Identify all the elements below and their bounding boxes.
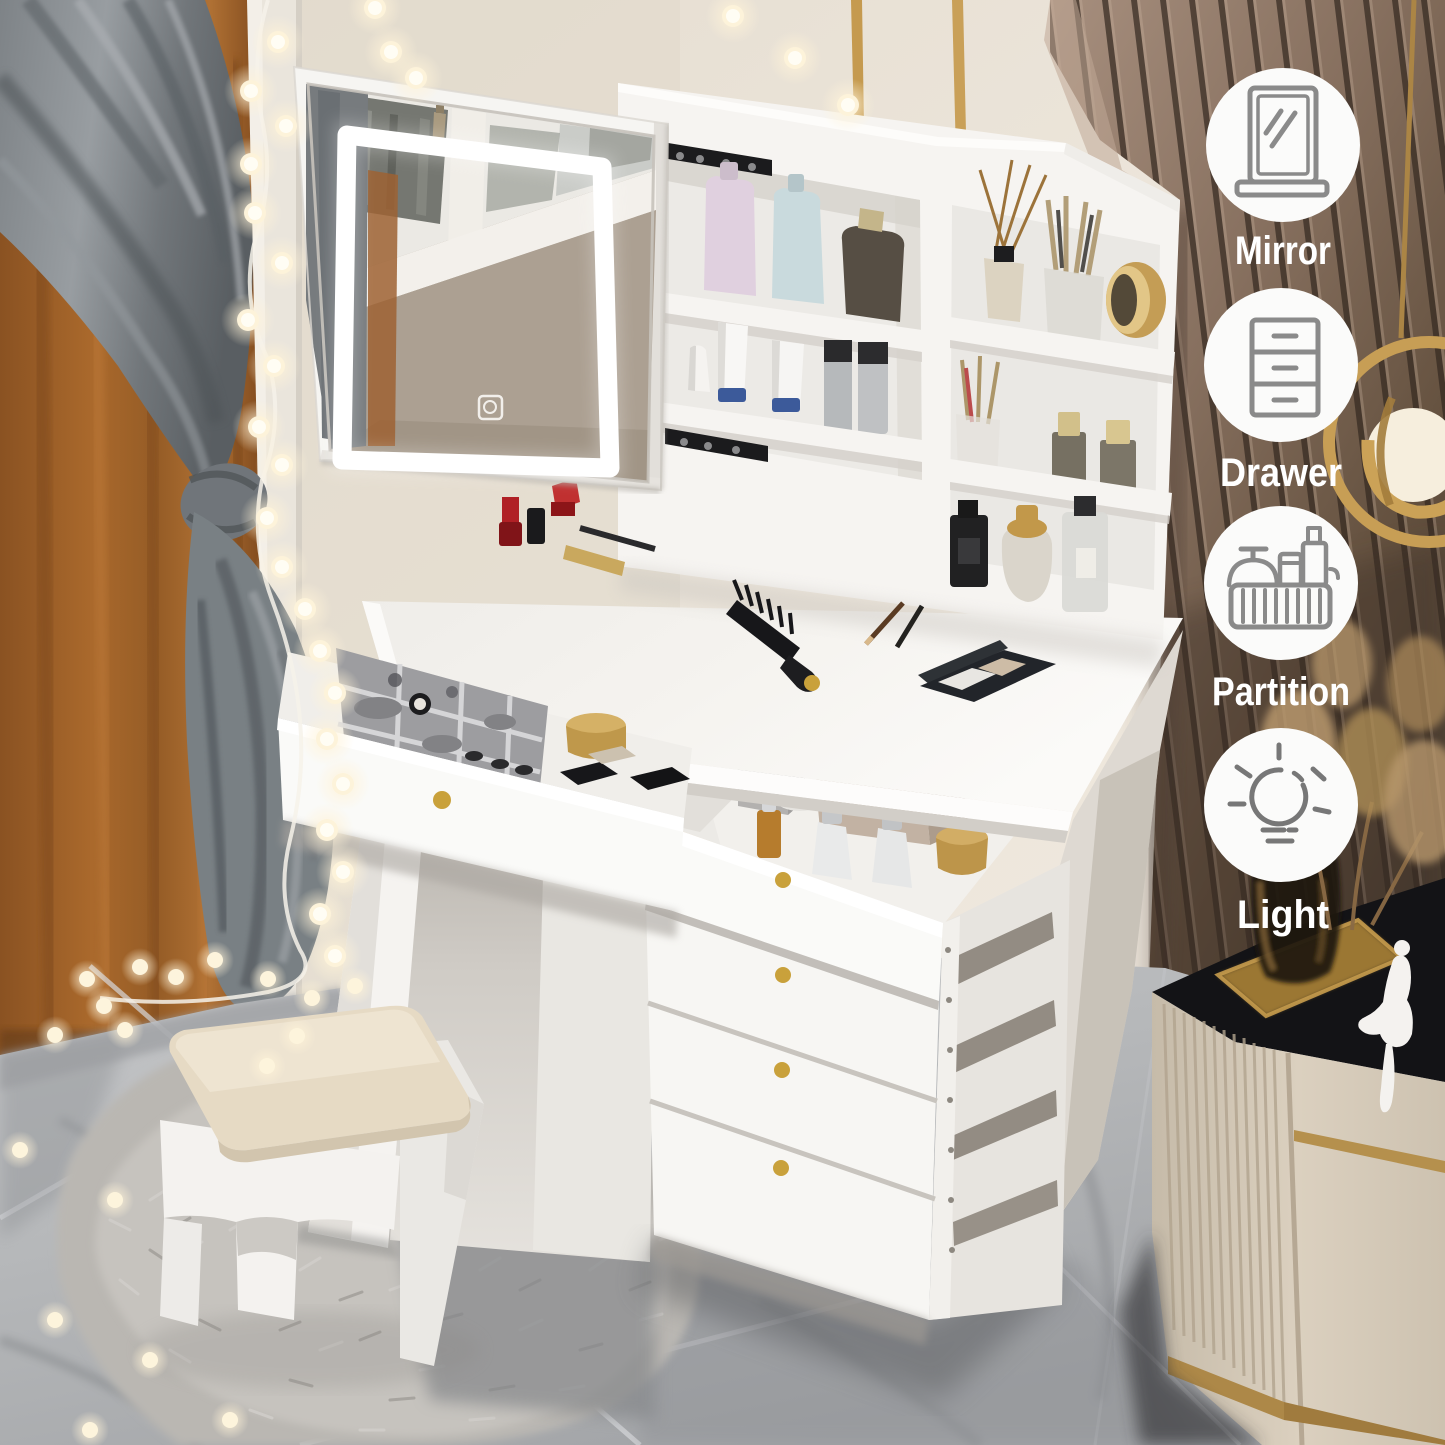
svg-text:Light: Light (1237, 893, 1329, 937)
svg-text:Drawer: Drawer (1220, 451, 1342, 495)
svg-text:Mirror: Mirror (1235, 229, 1331, 273)
svg-text:Partition: Partition (1212, 670, 1350, 714)
